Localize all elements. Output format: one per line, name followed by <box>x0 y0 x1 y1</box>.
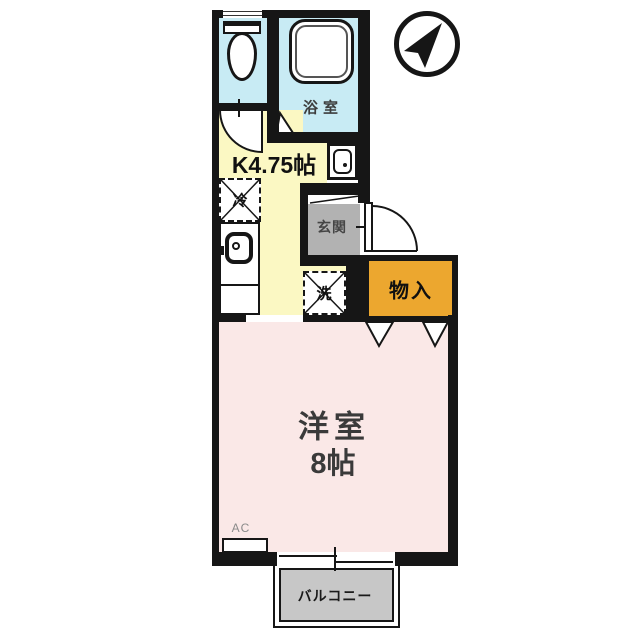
wall-left <box>212 10 219 566</box>
wall-washer-storage-divider <box>346 255 363 322</box>
wall-toilet-bath-divider <box>267 16 279 143</box>
north-arrow-icon <box>394 11 460 77</box>
air-conditioner-box <box>222 538 268 553</box>
washbasin-faucet-dot <box>343 163 347 167</box>
wall-bath-bottom <box>267 132 370 143</box>
wall-right-upper <box>358 10 370 203</box>
entrance-label: 玄関 <box>317 217 347 237</box>
balcony-label: バルコニー <box>298 586 373 606</box>
wall-right-lower <box>448 315 458 566</box>
entrance-door-arc <box>372 206 417 251</box>
sink-drain-dot <box>232 242 240 250</box>
balcony-sliding-window <box>277 552 395 566</box>
wall-kitchen-room-right <box>303 315 346 322</box>
bathtub-inner-line <box>295 25 348 78</box>
kitchen-label: K4.75帖 <box>232 146 316 180</box>
window-line <box>223 15 262 16</box>
bathroom-label: 浴室 <box>303 97 343 118</box>
wall-toilet-bottom <box>219 103 267 111</box>
kitchen-counter <box>219 222 260 315</box>
wall-entrance-top <box>300 183 370 195</box>
washbasin-icon <box>327 143 358 180</box>
north-arrow-glyph <box>399 16 455 72</box>
washbasin-bowl <box>333 149 352 174</box>
toilet-window <box>223 10 262 18</box>
refrigerator-label: 冷 <box>232 190 247 211</box>
entrance-door-leaf <box>365 203 372 251</box>
air-conditioner-label: AC <box>232 521 251 535</box>
counter-divider-line <box>221 284 258 286</box>
kitchen-sink-icon <box>225 232 253 264</box>
entrance-step-diagonal <box>310 196 359 203</box>
washing-machine-label: 洗 <box>316 283 331 304</box>
sliding-window-icon <box>277 547 395 571</box>
wall-entrance-left <box>300 195 308 255</box>
main-room-size-label: 8帖 <box>310 440 355 482</box>
bathtub-icon <box>289 19 354 84</box>
wall-kitchen-room-left <box>212 315 246 322</box>
window-line <box>223 11 262 12</box>
floorplan-canvas: K4.75帖 浴室 玄関 物入 洋室 8帖 バルコニー AC 冷 洗 <box>0 0 640 640</box>
storage-label: 物入 <box>389 275 433 304</box>
